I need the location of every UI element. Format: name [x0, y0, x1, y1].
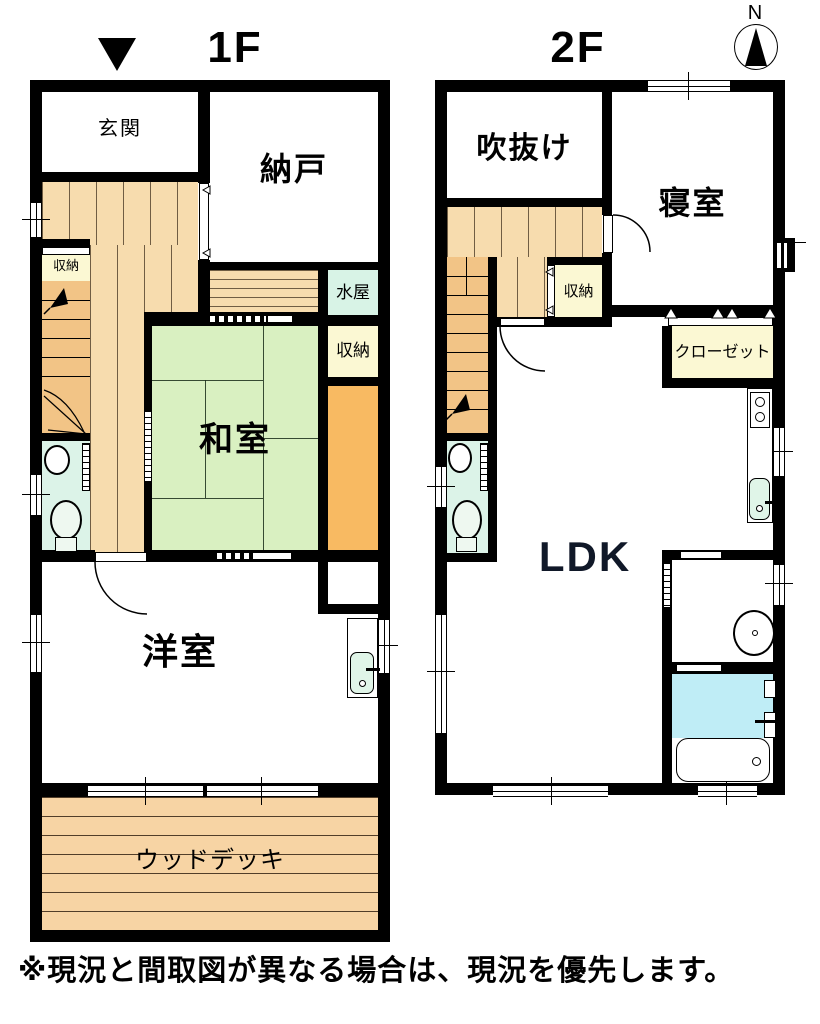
stair-step [447, 314, 488, 315]
washbasin-icon [350, 652, 374, 694]
tatami-line [152, 498, 263, 499]
stair-step [447, 352, 488, 353]
stair-step [42, 300, 90, 301]
window-tick [145, 777, 146, 805]
faucet-icon [765, 501, 780, 504]
wall [612, 305, 773, 317]
window-tick [688, 72, 689, 100]
pipe-shaft-slit [777, 243, 781, 268]
window [435, 615, 447, 733]
room-label-closet: クローゼット [670, 344, 775, 362]
room-label-youshitsu: 洋室 [42, 632, 318, 672]
faucet-icon [366, 668, 380, 671]
nook-room-1f [328, 562, 378, 604]
window [378, 620, 390, 673]
toilet-sink-icon [44, 445, 70, 475]
wall [447, 433, 488, 441]
compass-north-label: N [734, 2, 778, 24]
window-tick [427, 486, 455, 487]
room-label-mizuya: 水屋 [326, 284, 380, 303]
fusuma-door [212, 552, 252, 560]
disclaimer-text: ※現況と間取図が異なる場合は、現況を優先します。 [18, 956, 806, 988]
window [435, 467, 447, 507]
window [773, 565, 785, 605]
toilet-tank-icon [456, 537, 477, 552]
wall [318, 262, 328, 560]
room-label-wood-deck: ウッドデッキ [42, 848, 378, 874]
window-tick [427, 671, 455, 672]
compass-needle-icon [745, 28, 767, 66]
wall [488, 257, 497, 553]
window-tick [22, 219, 50, 220]
hallway-1f [90, 245, 198, 320]
wall [662, 378, 773, 388]
stair-step [447, 295, 488, 296]
hallway-1f [90, 320, 144, 560]
stair-step [447, 333, 488, 334]
bath-fixture [764, 712, 776, 738]
wall [198, 92, 210, 183]
wall [42, 433, 90, 441]
window [207, 785, 318, 797]
door-arc-ldk [500, 326, 545, 371]
fusuma-door [267, 315, 293, 323]
hallway-2f [490, 257, 547, 325]
stair-step [447, 276, 488, 277]
stair-step [447, 390, 488, 391]
room-label-genkan: 玄関 [42, 118, 198, 140]
accordion-door-toilet-1f [82, 443, 90, 491]
toilet-bowl-icon [50, 500, 82, 540]
outer-wall [30, 930, 390, 942]
sliding-door-storage-small [42, 247, 90, 255]
drain-dot [752, 630, 758, 636]
kitchen-sink-icon [749, 478, 770, 520]
sliding-door-washroom [680, 551, 722, 559]
wall [318, 604, 378, 614]
window [30, 203, 42, 237]
stair-step [447, 371, 488, 372]
stair-step [42, 319, 90, 320]
faucet-icon [755, 720, 775, 723]
pipe-shaft-slit [784, 243, 787, 268]
window-tick [551, 777, 552, 805]
fusuma-door [252, 552, 292, 560]
entrance-marker-triangle-icon [98, 38, 136, 71]
window [30, 475, 42, 515]
wall [328, 377, 378, 386]
room-label-ldk: LDK [500, 534, 670, 580]
room-label-storage-side: 収納 [326, 342, 380, 361]
room-label-fukinuke: 吹抜け [447, 132, 602, 165]
hallway-1f-corridor [210, 270, 318, 312]
toilet-tank-icon [55, 537, 77, 552]
stove-burner [755, 412, 765, 422]
tatami-line [152, 380, 263, 381]
room-label-bedroom: 寝室 [612, 186, 773, 221]
window-tick [261, 777, 262, 805]
room-label-nando: 納戸 [210, 152, 378, 187]
wall [447, 198, 612, 207]
window-tick [765, 583, 793, 584]
toilet-sink-icon [448, 443, 472, 473]
floor1-title: 1F [193, 24, 277, 72]
stair-step [447, 409, 488, 410]
bathroom-door [676, 664, 722, 672]
hallway-2f [447, 207, 602, 257]
pipe-shaft-tick [788, 242, 806, 243]
wall [328, 315, 378, 326]
accordion-door-toilet-2f [480, 443, 488, 491]
stair-step [42, 376, 90, 377]
closet-door-track [668, 317, 773, 326]
door-leaf-ldk [500, 318, 545, 326]
wall [602, 92, 612, 215]
sliding-door-nando [199, 183, 209, 260]
drain-dot [359, 680, 366, 687]
wall [547, 257, 612, 265]
room-label-washitsu: 和室 [152, 422, 318, 459]
drain-dot [756, 505, 763, 512]
hallway-1f [42, 182, 198, 245]
door-leaf-youshitsu [95, 552, 147, 562]
wall [42, 239, 90, 247]
door-arc-youshitsu [95, 562, 147, 614]
window [648, 80, 730, 92]
wall [447, 553, 497, 562]
stair-step [42, 357, 90, 358]
window [698, 785, 757, 797]
window [30, 615, 42, 672]
toilet-bowl-icon [452, 500, 482, 540]
staircase-1f [42, 279, 90, 433]
drain-dot [752, 757, 761, 766]
room-label-storage-2f: 収納 [553, 284, 604, 301]
outer-wall [435, 80, 785, 92]
accordion-door-washitsu [144, 410, 152, 482]
wall [42, 172, 198, 182]
window [773, 428, 785, 476]
staircase-2f [447, 257, 488, 433]
fusuma-door [205, 315, 267, 323]
bath-fixture [764, 680, 776, 698]
outer-wall [30, 80, 390, 92]
stair-step [42, 338, 90, 339]
window-tick [22, 494, 50, 495]
wall [210, 262, 378, 270]
room-label-storage-small: 収納 [42, 259, 90, 273]
bathroom-floor [672, 674, 773, 738]
floor-plan-canvas: 1F 2F N [0, 0, 820, 1024]
stove-burner [755, 397, 765, 407]
outer-wall [378, 80, 390, 942]
oshiire-closet-1f [328, 386, 378, 550]
floor2-title: 2F [536, 24, 620, 72]
